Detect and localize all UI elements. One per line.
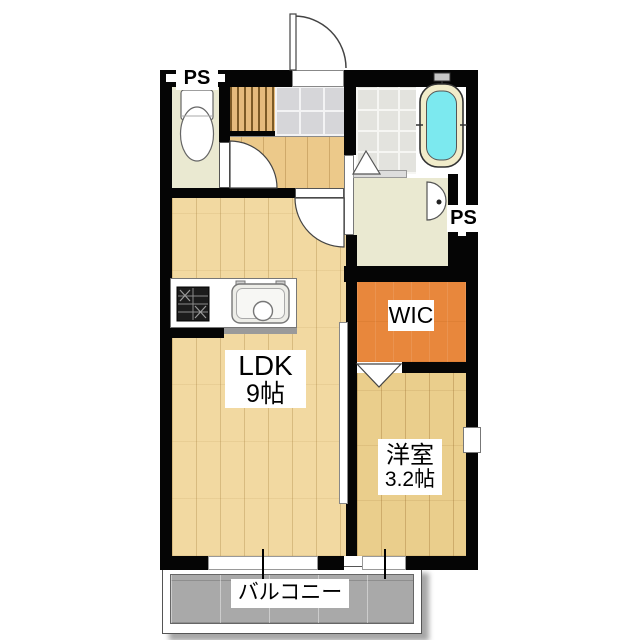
balcony-label: バルコニー	[231, 579, 349, 608]
hallway-floor	[219, 136, 344, 190]
bathroom-floor	[356, 87, 416, 174]
kitchen-counter-shadow	[224, 328, 297, 334]
washroom-sliding-door	[344, 155, 354, 235]
wic-label-text: WIC	[388, 303, 434, 327]
ps-label-right-text: PS	[447, 208, 480, 229]
ldk-label: LDK 9帖	[225, 350, 306, 408]
window-tick-western	[384, 549, 386, 579]
bathtub-zone	[416, 87, 466, 174]
entrance-door-sill	[292, 70, 344, 87]
western-room-label: 洋室 3.2帖	[378, 439, 442, 495]
wall-toilet-right	[219, 87, 230, 142]
window-tick-ldk	[262, 549, 264, 579]
ps-label-right: PS	[447, 205, 480, 232]
wall-right	[466, 70, 478, 570]
ldk-size-text: 9帖	[225, 381, 306, 407]
western-room-name-text: 洋室	[378, 443, 442, 468]
balcony-label-text: バルコニー	[231, 582, 349, 604]
wall-wic-bottom	[402, 362, 466, 373]
kitchen-counter	[170, 278, 297, 328]
washroom-floor	[353, 178, 450, 266]
toilet-door-leaf	[219, 142, 230, 188]
entrance-genkan-floor	[275, 87, 344, 136]
wall-bottom-a	[160, 556, 208, 570]
wall-washroom-wic	[344, 266, 466, 282]
western-room-side-window	[463, 427, 481, 453]
toilet-room-floor	[172, 87, 219, 196]
western-room-size-text: 3.2帖	[378, 469, 442, 491]
wall-bottom-b	[318, 556, 344, 570]
ps-label-top: PS	[176, 66, 218, 90]
wic-label: WIC	[388, 300, 434, 331]
ps-label-top-text: PS	[176, 68, 218, 89]
ldk-western-sliding-door	[339, 322, 348, 504]
wall-genkan-bath	[344, 70, 356, 155]
entrance-door-swing-icon	[290, 14, 346, 70]
ldk-name-text: LDK	[225, 351, 306, 380]
ldk-door-leaf	[295, 188, 344, 198]
floor-plan: PS PS WIC LDK 9帖 洋室 3.2帖 バルコニー	[0, 0, 640, 640]
wall-below-toilet	[166, 188, 295, 198]
wall-bottom-c	[406, 556, 478, 570]
kitchen-base-wall	[167, 328, 224, 338]
shoe-cabinet	[230, 87, 275, 133]
bathroom-door-sill	[353, 170, 407, 178]
